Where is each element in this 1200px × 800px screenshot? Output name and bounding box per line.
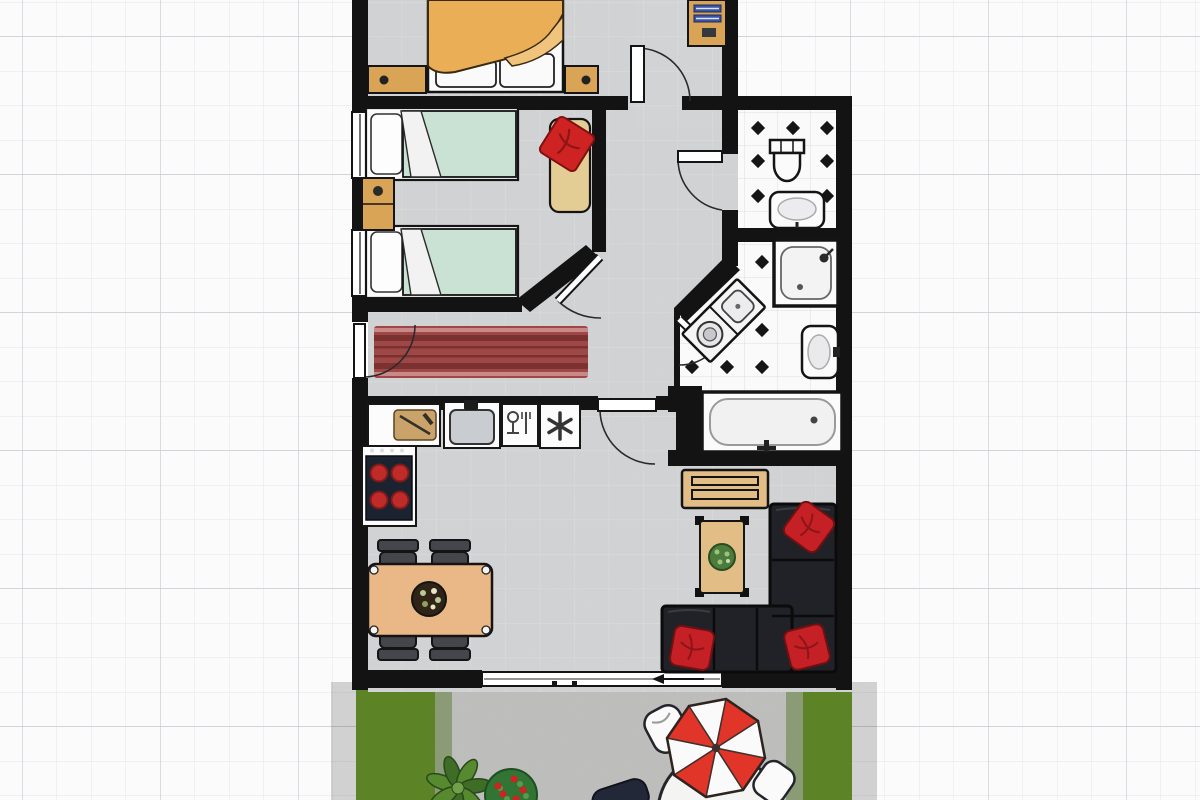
kitchen-sink — [444, 400, 500, 448]
wall-tub-left — [676, 386, 702, 452]
coffee-table — [695, 516, 749, 597]
nightstand-left — [368, 66, 426, 93]
bathroom-wall-sink — [802, 326, 840, 378]
slatted-bench — [682, 470, 768, 508]
wall-shelf-books — [688, 0, 726, 46]
nightstand-right — [565, 66, 598, 93]
floorplan-canvas — [0, 0, 1200, 800]
garden — [356, 688, 852, 800]
runner-rug — [374, 326, 588, 378]
single-bed-1 — [366, 108, 518, 180]
prep-counter — [368, 404, 440, 446]
shower-cabin — [774, 240, 838, 306]
wall-twin-bottom — [352, 298, 522, 312]
wall-bottom-left — [352, 670, 482, 688]
wall-wc-corridor-upper — [722, 96, 738, 154]
wall-bathwing-top — [722, 96, 852, 110]
bedside-cabinet — [362, 178, 394, 230]
wc-hand-basin — [770, 192, 824, 228]
table-centerpiece — [412, 582, 446, 616]
wall-twin-right — [592, 96, 606, 252]
bathtub — [702, 392, 842, 452]
stove — [362, 446, 416, 526]
dishwasher — [502, 404, 538, 446]
dining-table — [368, 564, 492, 636]
single-bed-2 — [366, 226, 518, 298]
freezer — [540, 404, 580, 448]
floorplan-stage — [0, 0, 1200, 800]
patio-door — [482, 672, 722, 686]
